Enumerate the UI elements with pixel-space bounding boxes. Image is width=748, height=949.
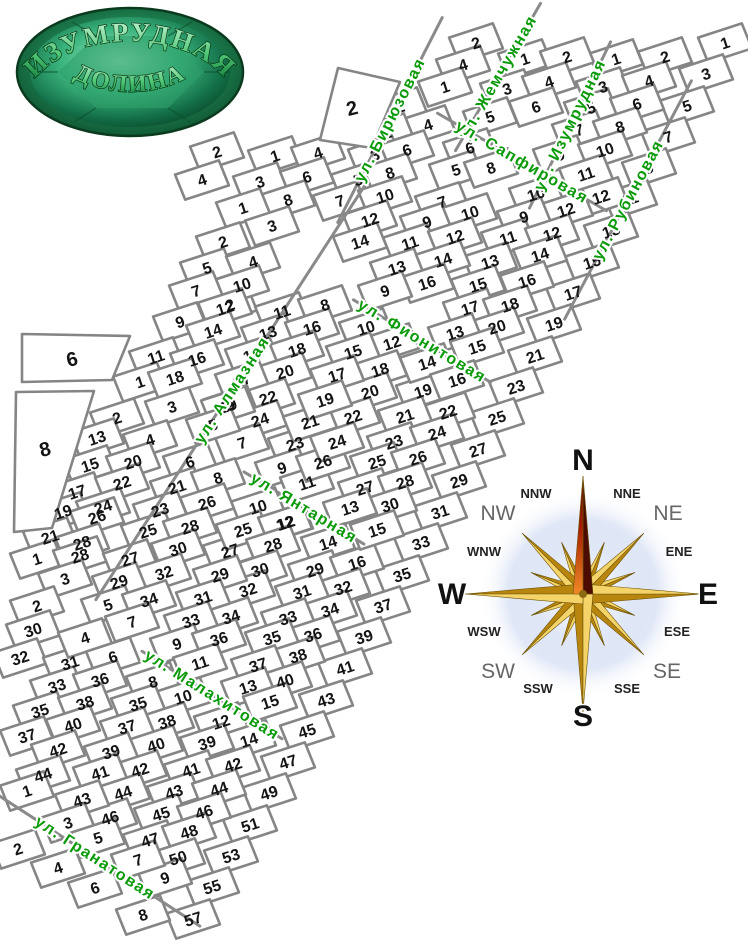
compass-label-se: SE: [653, 660, 681, 683]
compass-label-e: E: [698, 578, 718, 611]
compass-label-nne: NNE: [613, 486, 641, 501]
compass-label-ne: NE: [653, 502, 682, 525]
compass-label-sw: SW: [481, 660, 515, 683]
compass-label-nnw: NNW: [520, 486, 552, 501]
compass-label-n: N: [572, 444, 594, 477]
plot-map-page: 1357911131517192123252729313335373941434…: [0, 0, 748, 949]
map-svg: 1357911131517192123252729313335373941434…: [0, 0, 748, 949]
compass-label-wnw: WNW: [467, 544, 502, 559]
compass-label-nw: NW: [481, 502, 516, 525]
compass-label-s: S: [573, 700, 593, 733]
compass-center-dot: [579, 590, 587, 598]
compass-label-sse: SSE: [614, 681, 640, 696]
emerald-logo: ИЗУМРУДНАЯ ДОЛИНА: [17, 8, 243, 136]
compass-label-ese: ESE: [664, 624, 690, 639]
compass-label-w: W: [438, 578, 467, 611]
compass-label-wsw: WSW: [467, 624, 501, 639]
compass-label-ssw: SSW: [523, 681, 553, 696]
compass-label-ene: ENE: [666, 544, 693, 559]
